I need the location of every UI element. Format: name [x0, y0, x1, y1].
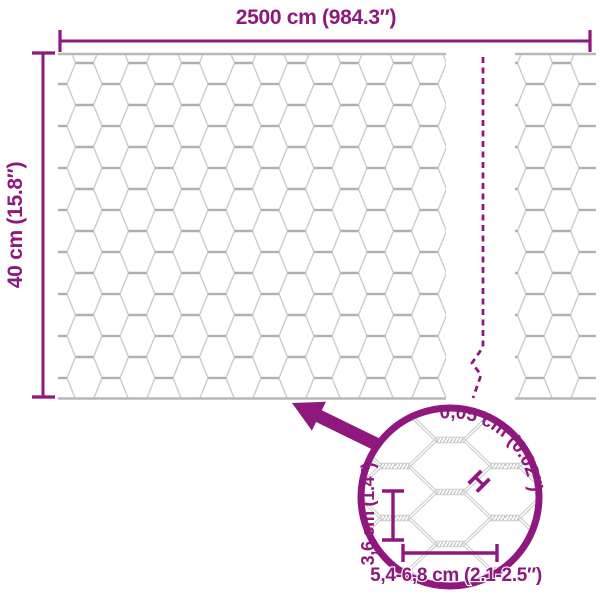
diagram-canvas: 2500 cm (984.3″) 40 cm (15.8″) 0,05 cm (… — [0, 0, 600, 600]
product-dimension-diagram: 2500 cm (984.3″) 40 cm (15.8″) 0,05 cm (… — [0, 0, 600, 600]
mesh-panel-right — [515, 53, 596, 399]
mesh-width-label: 5,4-6,8 cm (2.1-2.5″) — [370, 565, 542, 586]
zoom-detail-circle: 0,05 cm (0.02″) H 3,6 cm (1.4″) 5,4-6,8 … — [358, 402, 546, 590]
height-dimension: 40 cm (15.8″) — [4, 53, 55, 397]
break-dashed-line — [472, 57, 483, 398]
width-dimension: 2500 cm (984.3″) — [60, 6, 590, 52]
mesh-panel-main — [58, 53, 446, 399]
height-dimension-label: 40 cm (15.8″) — [4, 162, 27, 288]
zoom-pointer-arrow — [292, 402, 381, 451]
mesh-height-label: 3,6 cm (1.4″) — [358, 462, 378, 565]
width-dimension-label: 2500 cm (984.3″) — [236, 6, 397, 29]
